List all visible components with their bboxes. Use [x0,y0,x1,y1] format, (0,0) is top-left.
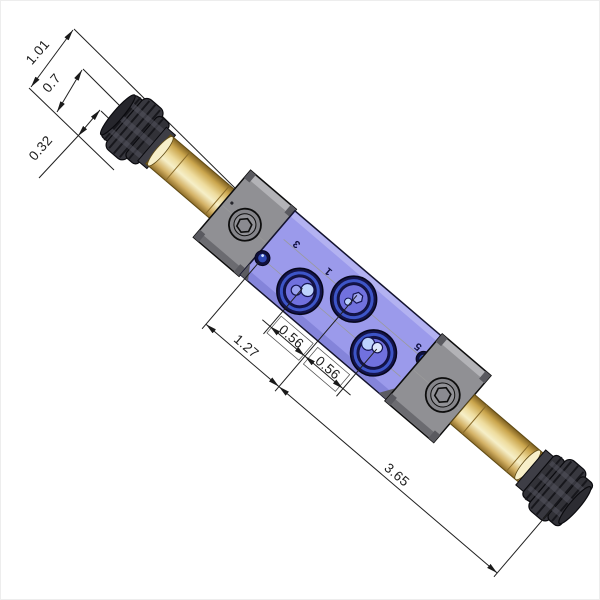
valve-isometric-drawing: 1.01 0.7 0.32 [1,1,600,600]
dimension-line-0-7 [57,70,82,112]
dimension-text-1-01: 1.01 [23,37,53,68]
extension-line [202,262,259,329]
dimension-text-0-32: 0.32 [26,133,56,164]
extension-line [494,506,554,577]
dimension-text-1-27: 1.27 [231,331,262,361]
cad-drawing-canvas: 1.01 0.7 0.32 [0,0,600,600]
dimension-text-0-7: 0.7 [39,71,63,96]
valve-assembly: 3 1 5 [44,78,600,590]
dimension-line-0-32 [78,110,100,136]
dimension-text-3-65: 3.65 [381,460,412,490]
